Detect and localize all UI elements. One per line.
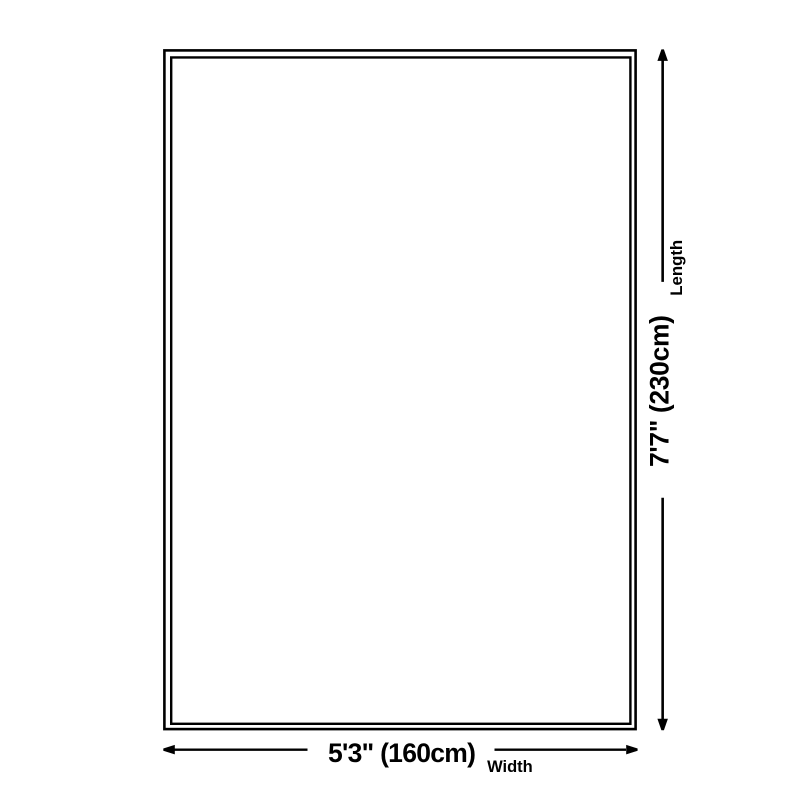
svg-text:7'7" (230cm): 7'7" (230cm): [645, 315, 675, 467]
svg-text:Width: Width: [487, 758, 533, 776]
svg-text:Length: Length: [667, 240, 686, 296]
svg-text:5'3" (160cm): 5'3" (160cm): [328, 738, 475, 768]
